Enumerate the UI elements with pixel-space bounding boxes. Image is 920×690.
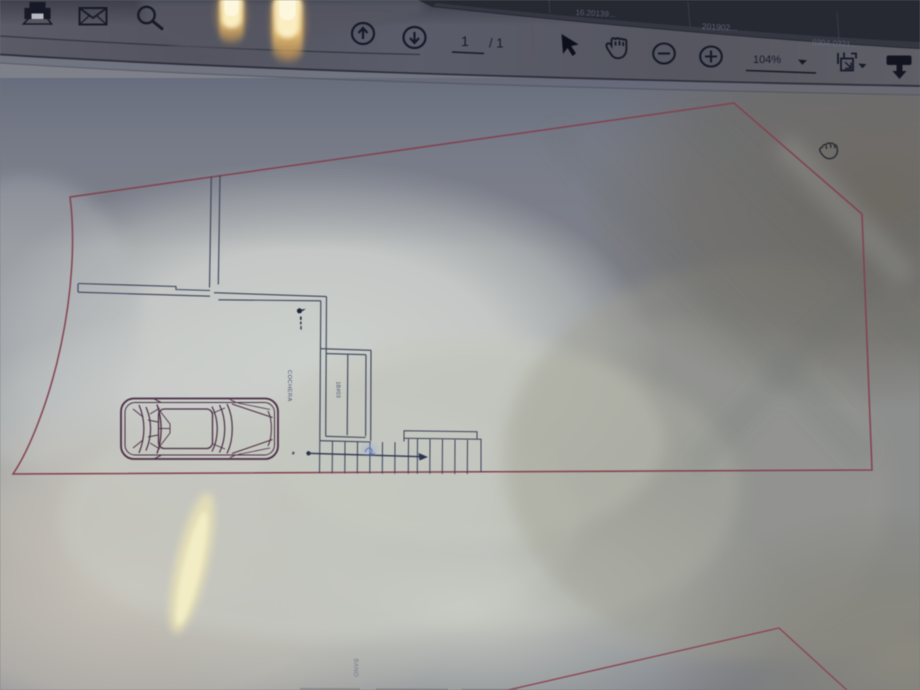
svg-text:COCHERA: COCHERA bbox=[286, 370, 292, 402]
svg-text:1B#03: 1B#03 bbox=[335, 382, 341, 399]
svg-text:201902...: 201902... bbox=[702, 21, 738, 33]
svg-text:/ 1: / 1 bbox=[489, 36, 503, 51]
svg-text:104%: 104% bbox=[753, 54, 781, 66]
svg-text:1: 1 bbox=[461, 33, 469, 49]
svg-text:BAÑO: BAÑO bbox=[352, 659, 359, 678]
